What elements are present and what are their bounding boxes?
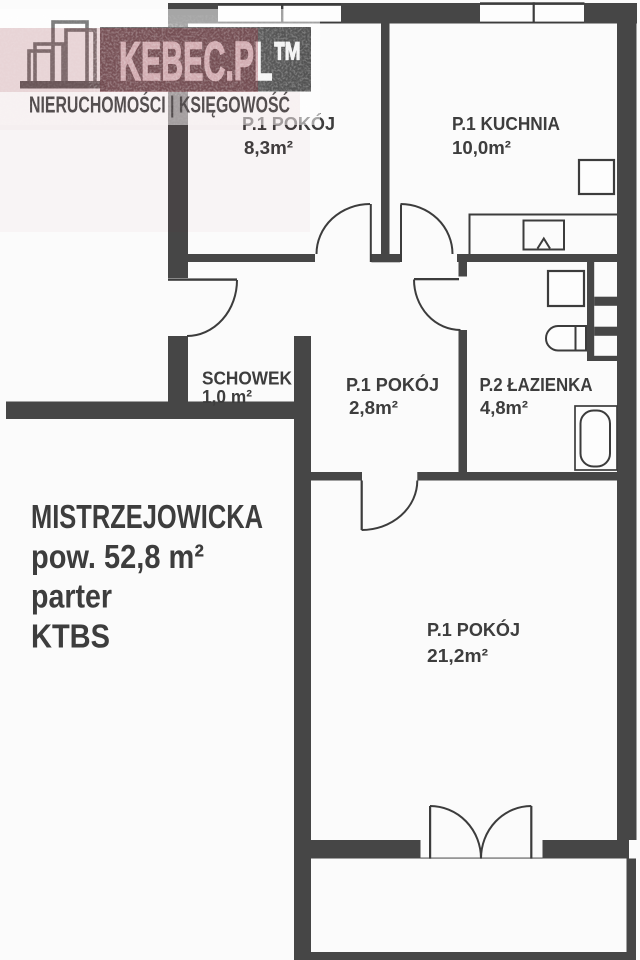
svg-text:parter: parter <box>31 579 112 616</box>
svg-text:MISTRZEJOWICKA: MISTRZEJOWICKA <box>31 499 263 536</box>
svg-text:P.2 ŁAZIENKA: P.2 ŁAZIENKA <box>480 374 593 395</box>
svg-text:pow. 52,8 m²: pow. 52,8 m² <box>31 539 204 576</box>
svg-text:10,0m²: 10,0m² <box>452 137 511 158</box>
svg-text:2,8m²: 2,8m² <box>349 397 398 418</box>
svg-text:4,8m²: 4,8m² <box>480 397 528 418</box>
svg-text:1,0 m²: 1,0 m² <box>202 386 252 407</box>
svg-text:P.1 KUCHNIA: P.1 KUCHNIA <box>452 113 560 134</box>
svg-text:21,2m²: 21,2m² <box>427 645 488 666</box>
svg-text:KTBS: KTBS <box>31 619 110 656</box>
svg-text:P.1 POKÓJ: P.1 POKÓJ <box>427 619 520 640</box>
svg-text:P.1 POKÓJ: P.1 POKÓJ <box>346 374 439 395</box>
